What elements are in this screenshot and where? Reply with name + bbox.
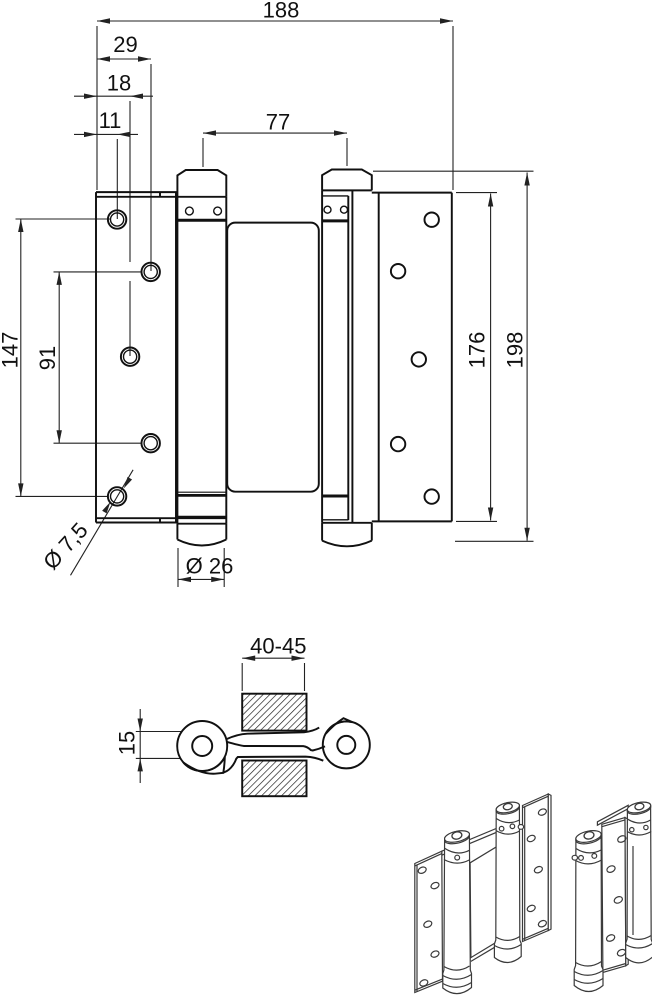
svg-text:Ø 26: Ø 26: [186, 554, 234, 579]
svg-text:188: 188: [263, 0, 300, 23]
svg-text:29: 29: [113, 32, 137, 57]
svg-text:18: 18: [107, 71, 131, 96]
svg-text:15: 15: [115, 731, 140, 755]
svg-text:176: 176: [465, 332, 490, 369]
svg-text:77: 77: [266, 110, 290, 135]
svg-text:91: 91: [35, 346, 60, 370]
svg-text:Ø 7,5: Ø 7,5: [38, 518, 93, 575]
svg-text:11: 11: [99, 108, 122, 133]
svg-text:147: 147: [0, 332, 23, 369]
svg-text:40-45: 40-45: [250, 634, 306, 659]
svg-text:198: 198: [503, 332, 528, 369]
